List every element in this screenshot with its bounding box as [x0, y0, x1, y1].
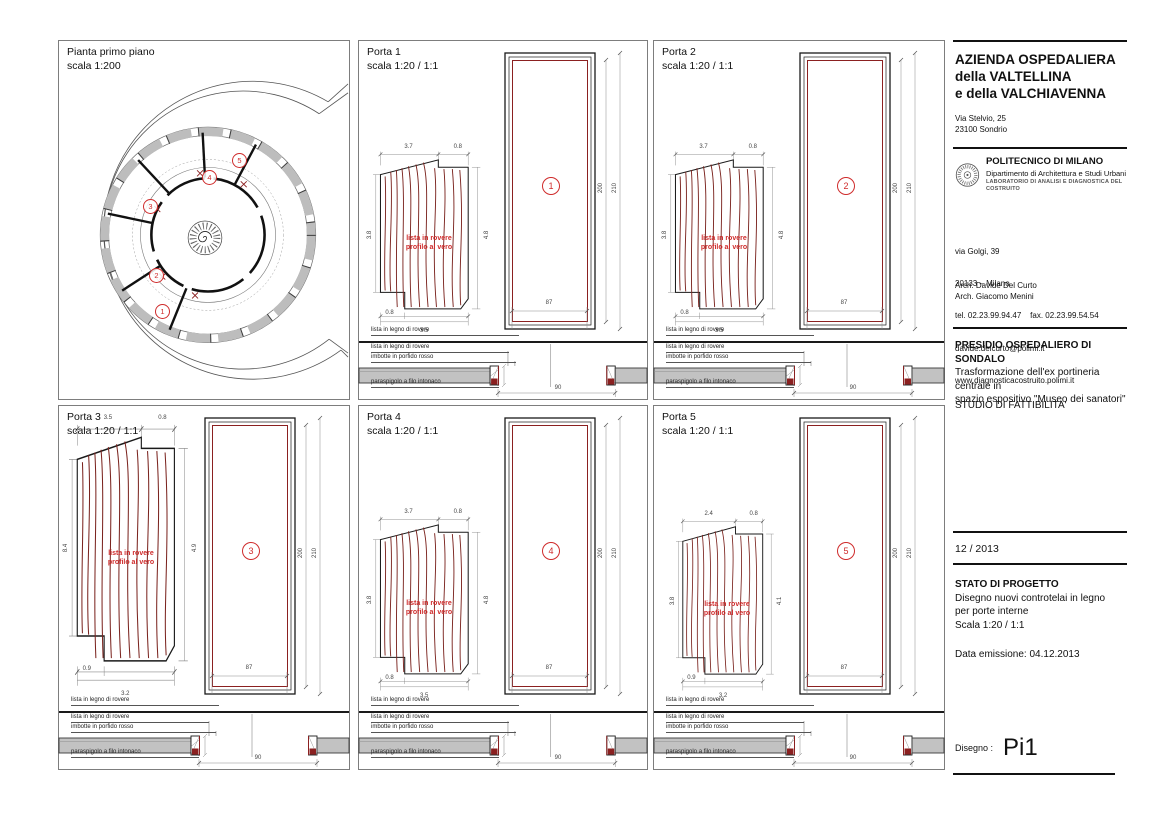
drawing-sheet: Pianta primo piano scala 1:200	[0, 0, 1170, 816]
dim-left: 3.8	[367, 230, 373, 238]
university-dept: Dipartimento di Architettura e Studi Urb…	[986, 169, 1129, 179]
architects: Arch. Davide Del Curto Arch. Giacomo Men…	[955, 281, 1037, 303]
door-frame-drawing: 2 87 200 210	[798, 51, 920, 331]
section-label-porphyry: imbotte in porfido rosso	[371, 354, 516, 363]
door-panel-2: Porta 2 scala 1:20 / 1:1 3.7 0.8 4.8 3.8…	[653, 40, 945, 400]
dim-frame-height-outer: 210	[907, 183, 913, 193]
dim-frame-height-inner: 200	[893, 548, 899, 558]
section-label-oak: lista in legno di rovere	[371, 344, 509, 353]
dim-bottom-a: 0.8	[385, 310, 393, 316]
profile-caption: lista in legno di rovere	[371, 327, 519, 336]
door-frame-svg	[798, 416, 920, 696]
university-block: POLITECNICO DI MILANO Dipartimento di Ar…	[955, 156, 1129, 194]
section-label-oak: lista in legno di rovere	[666, 714, 804, 723]
profile-caption: lista in legno di rovere	[666, 697, 814, 706]
door-scale: scala 1:20 / 1:1	[662, 425, 733, 439]
door-scale: scala 1:20 / 1:1	[367, 60, 438, 74]
dim-top-b: 0.8	[749, 144, 757, 150]
dim-sill: 90	[199, 755, 317, 761]
dim-frame-height-outer: 210	[907, 548, 913, 558]
profile-note: lista in rovere profilo al vero	[694, 601, 759, 619]
section-label-oak: lista in legno di rovere	[666, 344, 804, 353]
section-label-porphyry: imbotte in porfido rosso	[71, 724, 216, 733]
plan-panel-title: Pianta primo piano scala 1:200	[67, 46, 155, 73]
dim-top-b: 0.8	[454, 509, 462, 515]
door-panel-title: Porta 2 scala 1:20 / 1:1	[662, 46, 733, 73]
dim-top-a: 3.7	[699, 144, 707, 150]
dim-frame-height-inner: 200	[893, 183, 899, 193]
profile-caption: lista in legno di rovere	[371, 697, 519, 706]
project-phase: STUDIO DI FATTIBILITA'	[955, 399, 1067, 413]
door-title: Porta 4	[367, 411, 438, 425]
emission-date: Data emissione: 04.12.2013	[955, 648, 1080, 662]
plan-door-marker-4: 4	[202, 170, 217, 185]
dim-top-b: 0.8	[158, 415, 166, 421]
dim-top-a: 2.4	[705, 511, 713, 517]
door-frame-svg	[503, 416, 625, 696]
plan-title: Pianta primo piano	[67, 46, 155, 60]
dim-sill: 90	[794, 755, 912, 761]
drawing-code: Pi1	[1003, 734, 1038, 761]
date-code: 12 / 2013	[955, 542, 999, 556]
door-frame-svg	[203, 416, 325, 696]
dim-frame-height-inner: 200	[298, 548, 304, 558]
door-frame-drawing: 1 87 200 210	[503, 51, 625, 331]
profile-note: lista in rovere profilo al vero	[91, 550, 170, 568]
dim-frame-height-inner: 200	[598, 548, 604, 558]
door-frame-svg	[798, 51, 920, 331]
dim-frame-width: 87	[512, 665, 586, 671]
status-block: STATO DI PROGETTO Disegno nuovi controte…	[955, 578, 1105, 632]
door-title: Porta 1	[367, 46, 438, 60]
wood-profile-drawing: 3.5 0.8 4.9 8.4 0.9 3.2 lista in rovere …	[69, 418, 193, 694]
section-label-cornerguard: paraspigolo a filo intonaco	[71, 749, 199, 758]
door-number-badge: 1	[542, 177, 560, 195]
section-label-oak: lista in legno di rovere	[71, 714, 209, 723]
plan-door-marker-5: 5	[232, 153, 247, 168]
project-description: PRESIDIO OSPEDALIERO DI SONDALO Trasform…	[955, 339, 1129, 407]
section-label-oak: lista in legno di rovere	[371, 714, 509, 723]
client-address: Via Stelvio, 25 23100 Sondrio	[955, 114, 1007, 136]
door-panel-3: Porta 3 scala 1:20 / 1:1 3.5 0.8 4.9 8.4…	[58, 405, 350, 770]
door-frame-drawing: 3 87 200 210	[203, 416, 325, 696]
dim-frame-height-outer: 210	[312, 548, 318, 558]
door-number-badge: 2	[837, 177, 855, 195]
dim-right: 4.1	[777, 597, 783, 605]
dim-frame-width: 87	[512, 300, 586, 306]
section-label-porphyry: imbotte in porfido rosso	[666, 724, 811, 733]
dim-bottom-a: 0.8	[680, 310, 688, 316]
door-panel-title: Porta 3 scala 1:20 / 1:1	[67, 411, 138, 438]
door-frame-svg	[503, 51, 625, 331]
wood-profile-drawing: 3.7 0.8 4.8 3.8 0.8 3.5 lista in rovere …	[373, 147, 485, 331]
dim-top-a: 3.7	[404, 144, 412, 150]
door-title: Porta 3	[67, 411, 138, 425]
dim-frame-height-outer: 210	[612, 183, 618, 193]
jamb-section-drawing: lista in legno di rovere lista in legno …	[59, 711, 349, 769]
dim-frame-height-inner: 200	[598, 183, 604, 193]
section-label-cornerguard: paraspigolo a filo intonaco	[371, 749, 499, 758]
university-lab: LABORATORIO DI ANALISI E DIAGNOSTICA DEL…	[986, 179, 1129, 194]
jamb-section-drawing: lista in legno di rovere lista in legno …	[359, 341, 647, 399]
plan-panel: Pianta primo piano scala 1:200	[58, 40, 350, 400]
university-name: POLITECNICO DI MILANO	[986, 156, 1129, 169]
dim-sill: 90	[499, 385, 617, 391]
dim-top-b: 0.8	[749, 511, 757, 517]
jamb-section-drawing: lista in legno di rovere lista in legno …	[654, 711, 944, 769]
section-label-cornerguard: paraspigolo a filo intonaco	[666, 749, 794, 758]
door-scale: scala 1:20 / 1:1	[662, 60, 733, 74]
door-number-badge: 5	[837, 542, 855, 560]
plan-scale: scala 1:200	[67, 60, 155, 74]
section-label-porphyry: imbotte in porfido rosso	[666, 354, 811, 363]
door-scale: scala 1:20 / 1:1	[67, 425, 138, 439]
profile-caption: lista in legno di rovere	[666, 327, 814, 336]
dim-right: 4.8	[484, 595, 490, 603]
plan-door-marker-2: 2	[149, 268, 164, 283]
client-name: AZIENDA OSPEDALIERA della VALTELLINA e d…	[955, 52, 1116, 103]
door-panel-4: Porta 4 scala 1:20 / 1:1 3.7 0.8 4.8 3.8…	[358, 405, 648, 770]
drawing-number: Disegno :Pi1	[955, 732, 1038, 764]
dim-right: 4.9	[192, 544, 198, 552]
jamb-section-drawing: lista in legno di rovere lista in legno …	[359, 711, 647, 769]
wood-profile-drawing: 2.4 0.8 4.1 3.8 0.9 3.2 lista in rovere …	[676, 514, 778, 696]
door-title: Porta 2	[662, 46, 733, 60]
plan-door-marker-3: 3	[143, 199, 158, 214]
door-panel-5: Porta 5 scala 1:20 / 1:1 2.4 0.8 4.1 3.8…	[653, 405, 945, 770]
door-panel-title: Porta 5 scala 1:20 / 1:1	[662, 411, 733, 438]
door-scale: scala 1:20 / 1:1	[367, 425, 438, 439]
dim-left: 3.8	[662, 230, 668, 238]
door-frame-drawing: 5 87 200 210	[798, 416, 920, 696]
title-block: AZIENDA OSPEDALIERA della VALTELLINA e d…	[953, 40, 1129, 780]
profile-note: lista in rovere profilo al vero	[393, 600, 465, 618]
dim-sill: 90	[794, 385, 912, 391]
dim-frame-height-outer: 210	[612, 548, 618, 558]
dim-frame-width: 87	[807, 300, 881, 306]
door-panel-title: Porta 4 scala 1:20 / 1:1	[367, 411, 438, 438]
profile-caption: lista in legno di rovere	[71, 697, 219, 706]
dim-bottom-a: 0.9	[687, 675, 695, 681]
section-label-cornerguard: paraspigolo a filo intonaco	[371, 379, 499, 388]
door-number-badge: 3	[242, 542, 260, 560]
dim-frame-width: 87	[807, 665, 881, 671]
dim-sill: 90	[499, 755, 617, 761]
dim-bottom-a: 0.9	[83, 666, 91, 672]
door-number-badge: 4	[542, 542, 560, 560]
dim-frame-width: 87	[212, 665, 286, 671]
wood-profile-drawing: 3.7 0.8 4.8 3.8 0.8 3.5 lista in rovere …	[373, 512, 485, 696]
profile-note: lista in rovere profilo al vero	[393, 235, 465, 253]
dim-right: 4.8	[484, 230, 490, 238]
dim-top-b: 0.8	[454, 144, 462, 150]
dim-top-a: 3.7	[404, 509, 412, 515]
dim-right: 4.8	[779, 230, 785, 238]
door-frame-drawing: 4 87 200 210	[503, 416, 625, 696]
door-title: Porta 5	[662, 411, 733, 425]
section-label-porphyry: imbotte in porfido rosso	[371, 724, 516, 733]
politecnico-logo-icon	[955, 160, 980, 190]
section-label-cornerguard: paraspigolo a filo intonaco	[666, 379, 794, 388]
wood-profile-drawing: 3.7 0.8 4.8 3.8 0.8 3.5 lista in rovere …	[668, 147, 780, 331]
door-panel-title: Porta 1 scala 1:20 / 1:1	[367, 46, 438, 73]
profile-note: lista in rovere profilo al vero	[688, 235, 760, 253]
floor-plan-svg	[59, 41, 349, 399]
plan-door-marker-1: 1	[155, 304, 170, 319]
dim-left: 8.4	[63, 544, 69, 552]
jamb-section-drawing: lista in legno di rovere lista in legno …	[654, 341, 944, 399]
dim-left: 3.8	[670, 597, 676, 605]
dim-left: 3.8	[367, 595, 373, 603]
dim-bottom-a: 0.8	[385, 675, 393, 681]
door-panel-1: Porta 1 scala 1:20 / 1:1 3.7 0.8 4.8 3.8…	[358, 40, 648, 400]
